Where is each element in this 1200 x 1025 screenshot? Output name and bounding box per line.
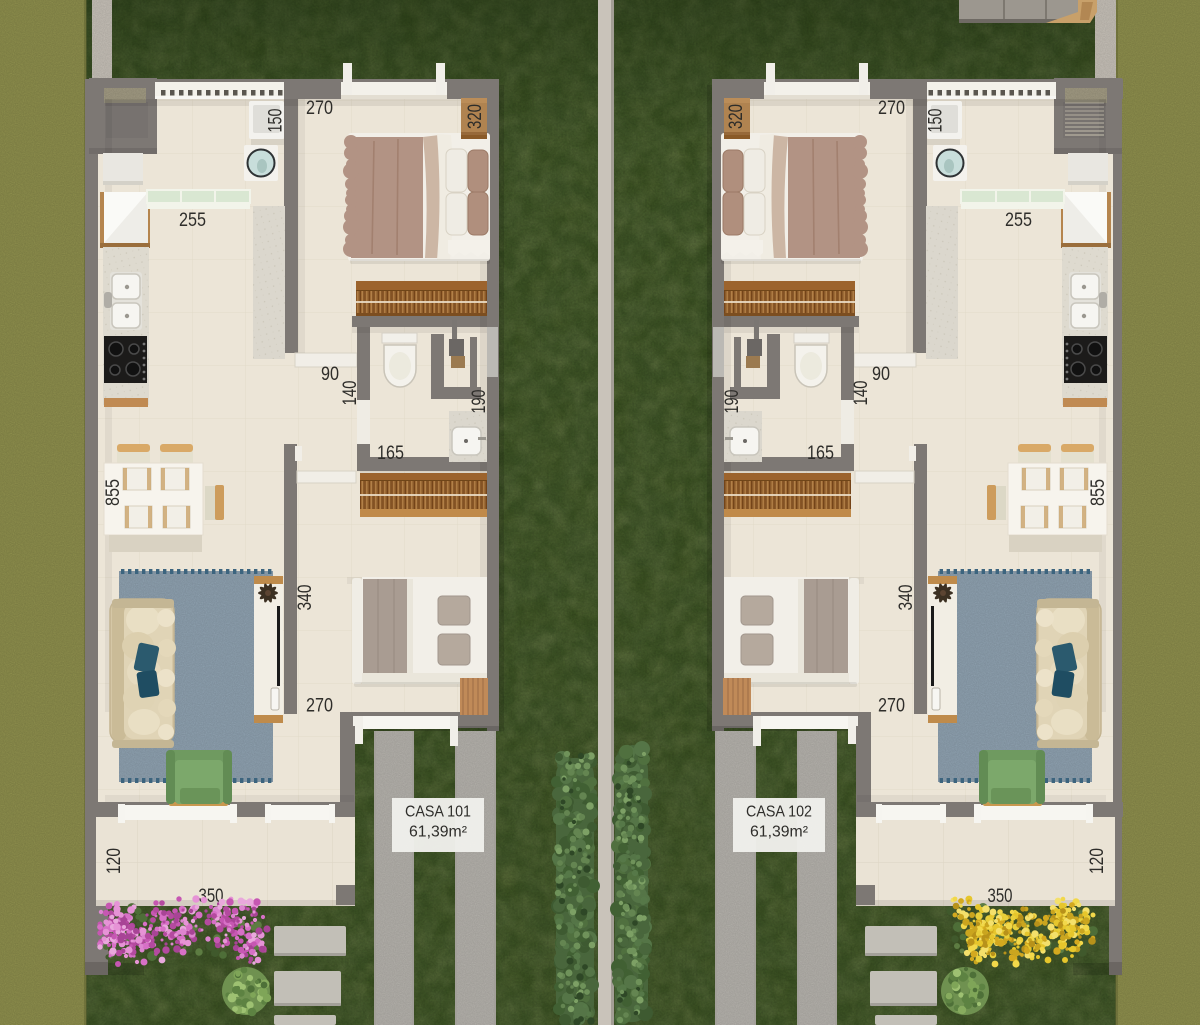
- svg-text:255: 255: [1005, 209, 1032, 231]
- svg-text:320: 320: [725, 104, 747, 129]
- svg-text:150: 150: [265, 108, 287, 132]
- svg-text:165: 165: [807, 442, 834, 464]
- svg-text:CASA 102: CASA 102: [746, 804, 812, 821]
- svg-text:190: 190: [468, 389, 490, 413]
- svg-text:61,39m²: 61,39m²: [750, 824, 808, 841]
- svg-text:90: 90: [321, 363, 339, 385]
- svg-text:320: 320: [464, 104, 486, 129]
- svg-text:190: 190: [721, 389, 743, 413]
- svg-text:340: 340: [895, 584, 917, 610]
- svg-text:140: 140: [339, 380, 361, 405]
- svg-text:855: 855: [102, 479, 124, 506]
- svg-text:270: 270: [878, 97, 905, 119]
- svg-text:CASA 101: CASA 101: [405, 804, 471, 821]
- svg-text:61,39m²: 61,39m²: [409, 824, 467, 841]
- svg-text:255: 255: [179, 209, 206, 231]
- svg-text:120: 120: [1086, 848, 1108, 874]
- svg-text:340: 340: [294, 584, 316, 610]
- svg-text:855: 855: [1087, 479, 1109, 506]
- svg-text:165: 165: [377, 442, 404, 464]
- svg-text:120: 120: [103, 848, 125, 874]
- svg-text:270: 270: [306, 97, 333, 119]
- svg-text:140: 140: [850, 380, 872, 405]
- svg-text:270: 270: [878, 695, 905, 717]
- svg-text:150: 150: [925, 108, 947, 132]
- svg-text:350: 350: [988, 885, 1013, 907]
- svg-text:90: 90: [872, 363, 890, 385]
- svg-text:270: 270: [306, 695, 333, 717]
